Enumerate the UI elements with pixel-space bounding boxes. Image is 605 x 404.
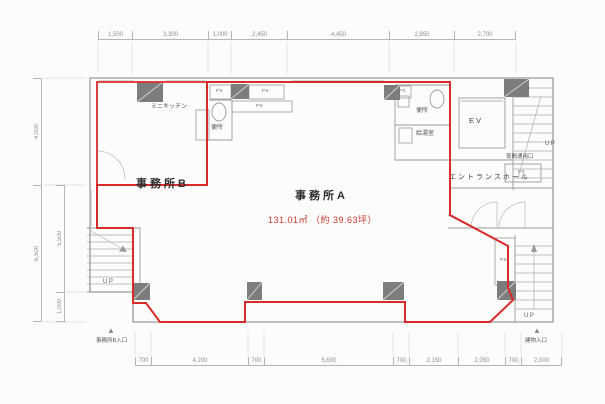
dim-label: 4,450 <box>331 32 346 38</box>
mini-kitchen-label: ミニキッチン <box>151 104 187 110</box>
dim-label: 3,300 <box>163 32 178 38</box>
dim-label: 1,000 <box>212 32 227 38</box>
up-label-top-right-stairs: UP <box>545 141 556 147</box>
dim-segment: 6,500 <box>33 185 42 322</box>
toilet-label-right: 便所 <box>416 108 428 114</box>
dim-label: 5,500 <box>57 231 63 246</box>
dim-segment: 4,450 <box>287 31 389 40</box>
ps-label: PS <box>262 89 269 94</box>
dim-segment: 700 <box>248 357 264 366</box>
dim-label: 1,000 <box>57 299 63 314</box>
dimension-col-left-inner: 5,5001,000 <box>56 185 65 322</box>
toilet-label-left: 便所 <box>211 125 223 131</box>
ps-label: PS <box>256 104 263 109</box>
dim-segment: 700 <box>505 357 521 366</box>
floor-plan-drawing <box>0 0 605 404</box>
unit-a-outline <box>97 82 513 322</box>
dim-label: 700 <box>508 358 518 364</box>
dim-segment: 2,050 <box>458 357 505 366</box>
dim-segment: 5,600 <box>264 357 393 366</box>
dim-segment: 4,200 <box>151 357 248 366</box>
elevator-label: EV <box>469 117 483 125</box>
dim-label: 6,500 <box>34 246 40 261</box>
ps-label: PS <box>216 89 223 94</box>
dim-segment: 1,500 <box>98 31 132 40</box>
dim-label: 700 <box>396 358 406 364</box>
dimension-row-top: 1,5003,3001,0002,4504,4502,8502,700 <box>98 31 516 40</box>
dim-label: 2,000 <box>534 358 549 364</box>
dim-segment: 1,000 <box>56 292 65 322</box>
dim-segment: 1,000 <box>208 31 231 40</box>
dim-segment: 2,450 <box>231 31 287 40</box>
toilet-bowl-icon <box>430 90 444 108</box>
building-entrance-label: 建物入口 <box>525 339 547 345</box>
dimension-col-left-outer: 4,0006,500 <box>33 78 42 322</box>
dim-label: 2,700 <box>477 32 492 38</box>
toilet-bowl-icon <box>212 103 226 121</box>
ps-label: PS <box>518 170 525 175</box>
dim-segment: 2,700 <box>454 31 516 40</box>
office-b-entrance-arrow-icon: ▲ <box>107 327 115 335</box>
up-label-bottom-left-stairs: UP <box>103 279 114 285</box>
ps-label: PS <box>500 258 507 263</box>
dim-label: 2,150 <box>426 358 441 364</box>
dim-label: 1,500 <box>108 32 123 38</box>
dim-label: 2,450 <box>252 32 267 38</box>
dim-segment: 5,500 <box>56 185 65 292</box>
dim-label: 5,600 <box>321 358 336 364</box>
stair-direction-arrows <box>119 244 537 252</box>
floor-plan-page: 1,5003,3001,0002,4504,4502,8502,700 7004… <box>0 0 605 404</box>
dim-label: 4,000 <box>34 124 40 139</box>
window-lines <box>92 81 385 227</box>
up-label-bottom-right-stairs: UP <box>524 313 535 319</box>
dim-segment: 2,000 <box>521 357 562 366</box>
unit-b-label: 事務所B <box>136 179 189 190</box>
dim-label: 700 <box>138 358 148 364</box>
unit-a-area-label: 131.01㎡ （約 39.63坪） <box>268 216 377 225</box>
dim-segment: 2,850 <box>389 31 454 40</box>
dim-segment: 700 <box>135 357 151 366</box>
dim-segment: 700 <box>393 357 409 366</box>
dim-label: 700 <box>251 358 261 364</box>
dim-segment: 3,300 <box>132 31 208 40</box>
ps-label: PS <box>399 89 406 94</box>
office-b-entrance-label: 事務所B入口 <box>96 339 127 345</box>
dim-segment: 2,150 <box>409 357 458 366</box>
kitchenette-label: 給湯室 <box>416 131 434 137</box>
dimension-row-bottom: 7004,2007005,6007002,1502,0507002,000 <box>135 357 562 366</box>
dim-label: 2,050 <box>474 358 489 364</box>
dim-segment: 4,000 <box>33 78 42 185</box>
dim-label: 4,200 <box>192 358 207 364</box>
dim-label: 2,850 <box>414 32 429 38</box>
unit-a-label: 事務所A <box>295 191 348 202</box>
night-entrance-label: 夜間通用口 <box>506 155 534 161</box>
building-entrance-arrow-icon: ▲ <box>533 327 541 335</box>
entrance-hall-label: エントランスホール <box>449 174 530 181</box>
